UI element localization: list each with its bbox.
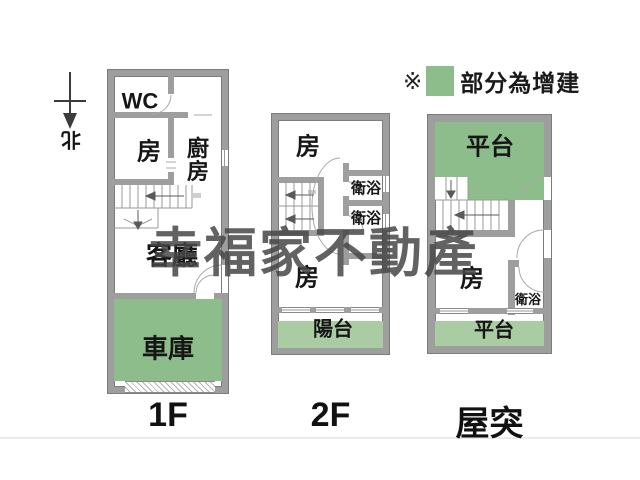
stair-annotation	[308, 190, 316, 194]
window	[383, 176, 389, 192]
legend-label: 部分為增建	[460, 64, 580, 98]
watermark: 幸福家不動產	[149, 211, 479, 287]
wall-segment	[349, 170, 383, 176]
wall-segment	[510, 260, 519, 267]
room-label-deck-top: 平台	[466, 134, 514, 159]
room-label-garage: 車庫	[142, 335, 194, 362]
stair-landing	[435, 177, 468, 200]
floor-label-roof: 屋突	[428, 396, 551, 445]
room-label-kitchen: 廚房	[186, 137, 210, 183]
window	[282, 307, 310, 313]
room-label-bath: 衛浴	[515, 293, 541, 307]
door-opening	[544, 230, 551, 258]
room-label-bath-1: 衛浴	[351, 181, 381, 197]
garage-door	[125, 381, 215, 393]
wall-segment	[349, 200, 383, 206]
room-label-deck-bottom: 平台	[474, 321, 514, 342]
wall-segment	[508, 260, 515, 315]
stair-annotation	[193, 193, 201, 198]
room-label-bedroom: 房	[137, 139, 161, 164]
window	[222, 150, 228, 166]
legend: ※ 部分為增建	[403, 64, 580, 98]
north-arrow-icon	[44, 68, 96, 130]
legend-color-swatch	[426, 66, 454, 96]
north-label: 北	[57, 127, 85, 156]
wall-segment	[168, 76, 174, 94]
floor-label-1f: 1F	[108, 396, 228, 435]
legend-marker: ※	[403, 68, 422, 95]
window	[440, 308, 468, 314]
wall-segment	[114, 179, 174, 185]
room-label-wc: WC	[122, 89, 159, 112]
window	[507, 308, 533, 314]
floor-label-2f: 2F	[272, 396, 389, 435]
wall-segment	[168, 118, 174, 158]
wall-segment	[278, 177, 320, 183]
room-label-balcony: 陽台	[313, 320, 353, 341]
floorplan-image: 北 ※ 部分為增建	[0, 0, 640, 480]
room-label-bedroom-top: 房	[296, 134, 320, 159]
door-opening	[544, 177, 551, 200]
window	[316, 307, 344, 313]
window	[351, 307, 379, 313]
